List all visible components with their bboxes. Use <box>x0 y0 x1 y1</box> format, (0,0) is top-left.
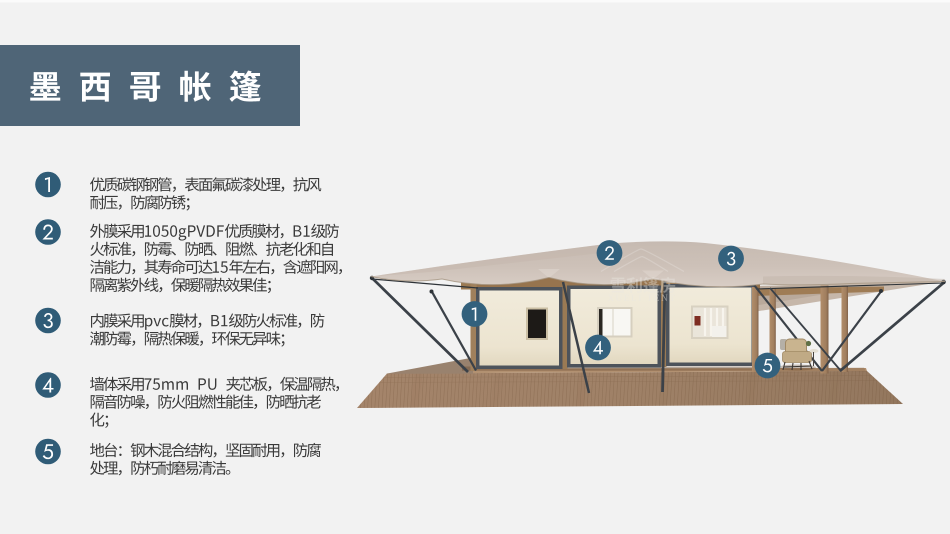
svg-text:XUELI TENT: XUELI TENT <box>607 293 676 303</box>
